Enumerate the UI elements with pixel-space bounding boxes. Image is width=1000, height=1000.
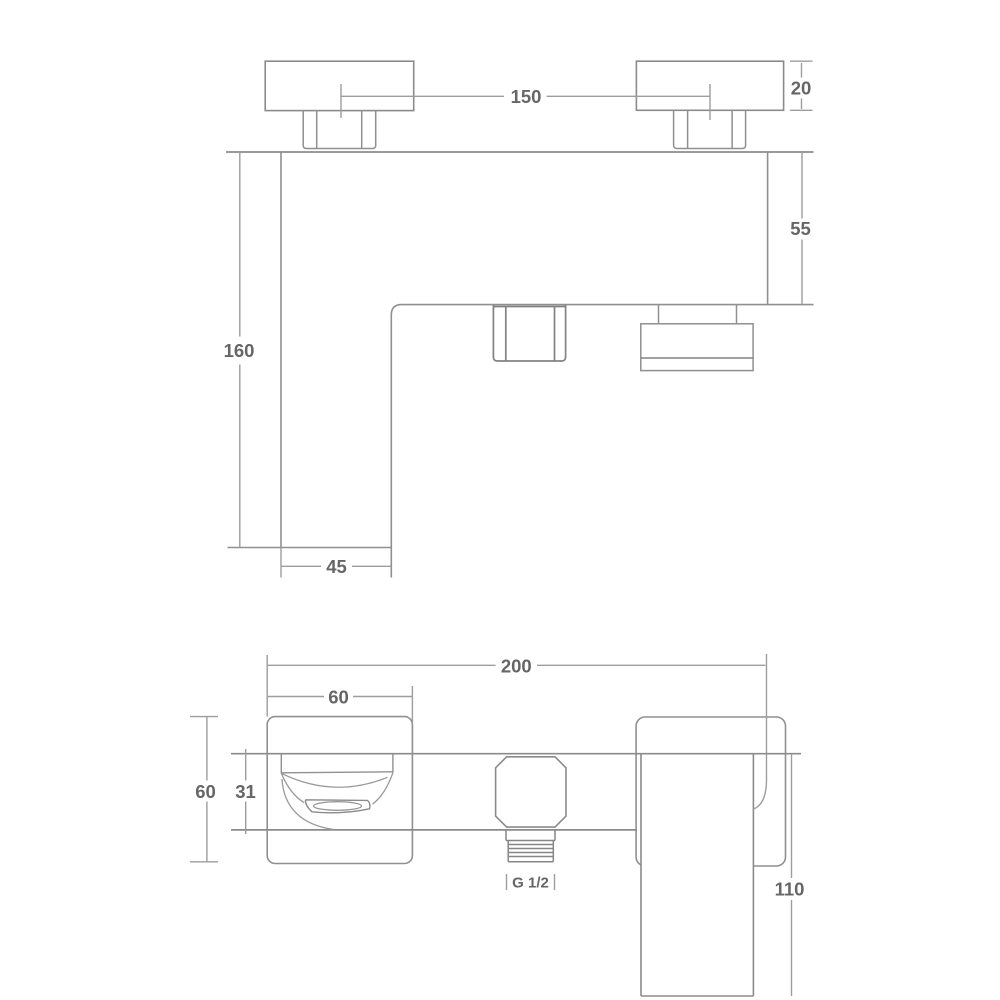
svg-text:60: 60 [328, 687, 349, 708]
svg-text:G 1/2: G 1/2 [512, 874, 549, 891]
svg-text:31: 31 [235, 781, 256, 802]
svg-text:45: 45 [326, 556, 347, 577]
svg-text:110: 110 [775, 879, 805, 900]
svg-text:200: 200 [501, 656, 532, 677]
svg-text:160: 160 [224, 340, 255, 361]
svg-text:20: 20 [791, 77, 812, 98]
svg-text:60: 60 [195, 781, 216, 802]
svg-text:55: 55 [790, 218, 811, 239]
svg-text:150: 150 [511, 86, 542, 107]
